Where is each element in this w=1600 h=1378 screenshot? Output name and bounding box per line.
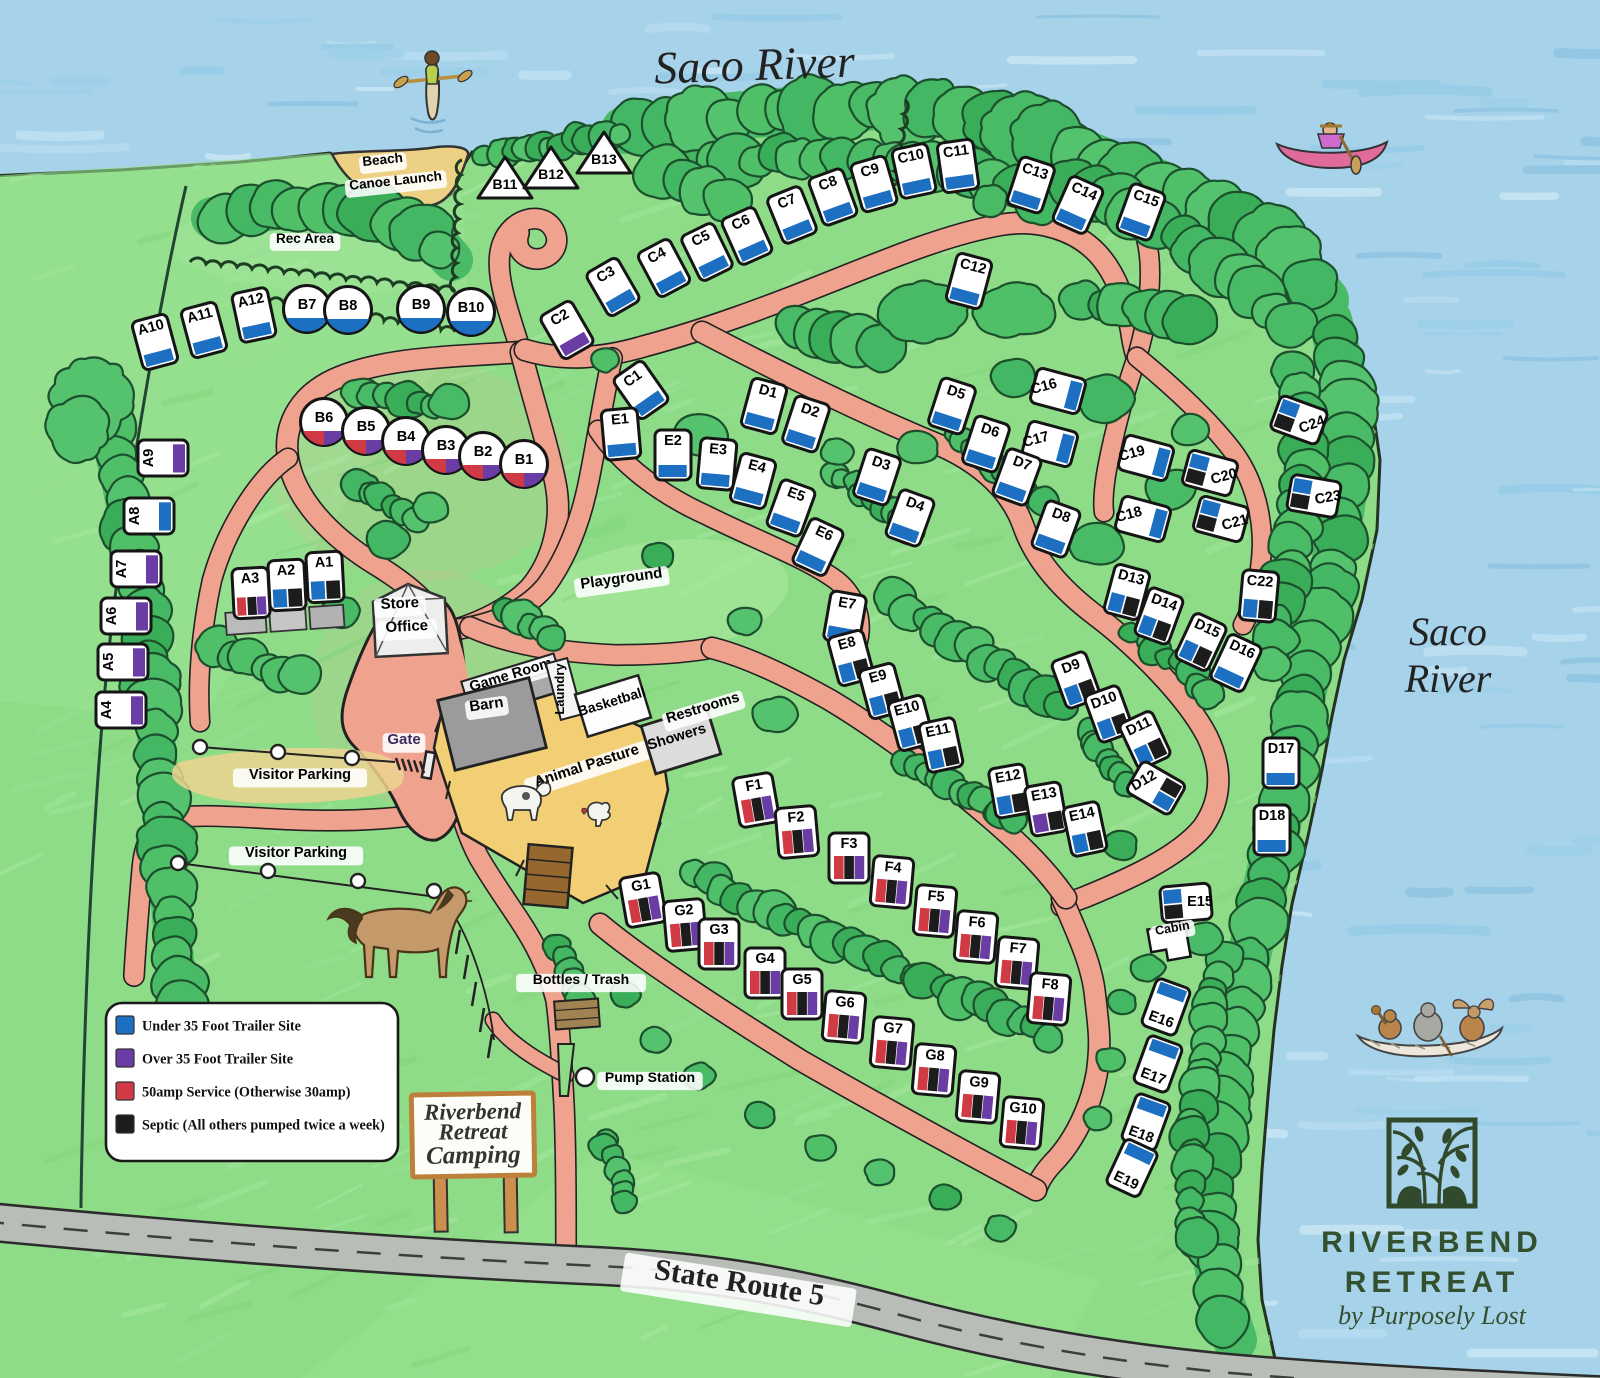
svg-text:A7: A7 [114, 560, 130, 579]
svg-text:B1: B1 [515, 452, 534, 468]
svg-text:G10: G10 [1009, 1100, 1038, 1118]
svg-text:G3: G3 [709, 922, 728, 938]
svg-text:Visitor Parking: Visitor Parking [245, 845, 347, 861]
svg-text:G8: G8 [925, 1047, 946, 1065]
svg-text:B11: B11 [493, 176, 518, 192]
svg-text:B4: B4 [397, 429, 416, 445]
svg-text:A1: A1 [314, 554, 333, 571]
svg-text:D17: D17 [1268, 741, 1295, 757]
svg-text:E1: E1 [610, 411, 629, 428]
svg-text:D18: D18 [1259, 808, 1286, 824]
svg-text:A5: A5 [101, 653, 117, 672]
svg-text:B5: B5 [357, 419, 376, 435]
svg-text:B7: B7 [298, 297, 317, 313]
svg-text:A2: A2 [276, 562, 295, 579]
svg-text:Rec Area: Rec Area [276, 231, 335, 246]
svg-text:by Purposely Lost: by Purposely Lost [1338, 1301, 1527, 1330]
svg-text:B6: B6 [315, 410, 334, 426]
svg-text:Saco: Saco [1409, 609, 1487, 654]
svg-text:A6: A6 [104, 607, 120, 626]
svg-text:Over 35 Foot Trailer Site: Over 35 Foot Trailer Site [142, 1052, 293, 1068]
svg-text:G2: G2 [674, 902, 695, 920]
svg-text:E3: E3 [708, 441, 727, 458]
svg-text:B10: B10 [458, 300, 485, 316]
svg-text:RETREAT: RETREAT [1345, 1266, 1519, 1299]
svg-text:A4: A4 [99, 701, 115, 720]
svg-text:B8: B8 [339, 298, 358, 314]
svg-text:F8: F8 [1041, 976, 1059, 993]
svg-text:F5: F5 [927, 888, 945, 905]
svg-text:Gate: Gate [387, 731, 420, 748]
svg-text:A8: A8 [127, 507, 143, 526]
svg-text:Bottles / Trash: Bottles / Trash [533, 971, 629, 987]
svg-text:B2: B2 [474, 444, 493, 460]
svg-text:F1: F1 [744, 776, 763, 795]
svg-text:RIVERBEND: RIVERBEND [1321, 1226, 1543, 1259]
svg-text:Under 35 Foot Trailer Site: Under 35 Foot Trailer Site [142, 1019, 301, 1035]
svg-text:B3: B3 [437, 438, 456, 454]
svg-text:B12: B12 [538, 166, 564, 182]
svg-text:C22: C22 [1246, 573, 1274, 591]
svg-text:B13: B13 [591, 151, 617, 167]
svg-text:Store: Store [380, 594, 419, 613]
svg-text:G1: G1 [630, 876, 652, 895]
svg-text:B9: B9 [412, 297, 431, 313]
svg-text:G9: G9 [969, 1074, 990, 1092]
svg-text:Saco River: Saco River [653, 35, 856, 93]
svg-text:A3: A3 [240, 570, 259, 587]
svg-text:F6: F6 [968, 914, 986, 931]
svg-text:E7: E7 [837, 594, 857, 613]
svg-text:Septic (All others pumped twic: Septic (All others pumped twice a week) [142, 1118, 385, 1134]
svg-text:F2: F2 [787, 809, 805, 826]
svg-text:G7: G7 [883, 1020, 904, 1038]
svg-text:G4: G4 [755, 951, 774, 967]
svg-text:Camping: Camping [426, 1141, 521, 1170]
svg-text:A9: A9 [141, 449, 157, 468]
svg-text:Visitor Parking: Visitor Parking [249, 767, 351, 783]
svg-text:F4: F4 [884, 859, 902, 876]
svg-text:E15: E15 [1187, 894, 1213, 910]
svg-text:F7: F7 [1009, 940, 1027, 957]
svg-text:Office: Office [385, 617, 428, 636]
svg-text:50amp Service (Otherwise 30amp: 50amp Service (Otherwise 30amp) [142, 1085, 351, 1101]
svg-text:G6: G6 [835, 994, 856, 1012]
svg-text:River: River [1404, 656, 1492, 701]
svg-text:Laundry: Laundry [552, 663, 567, 715]
svg-text:F3: F3 [841, 836, 858, 852]
svg-text:Pump Station: Pump Station [605, 1069, 695, 1085]
svg-text:G5: G5 [792, 972, 811, 988]
svg-text:E2: E2 [664, 433, 682, 449]
